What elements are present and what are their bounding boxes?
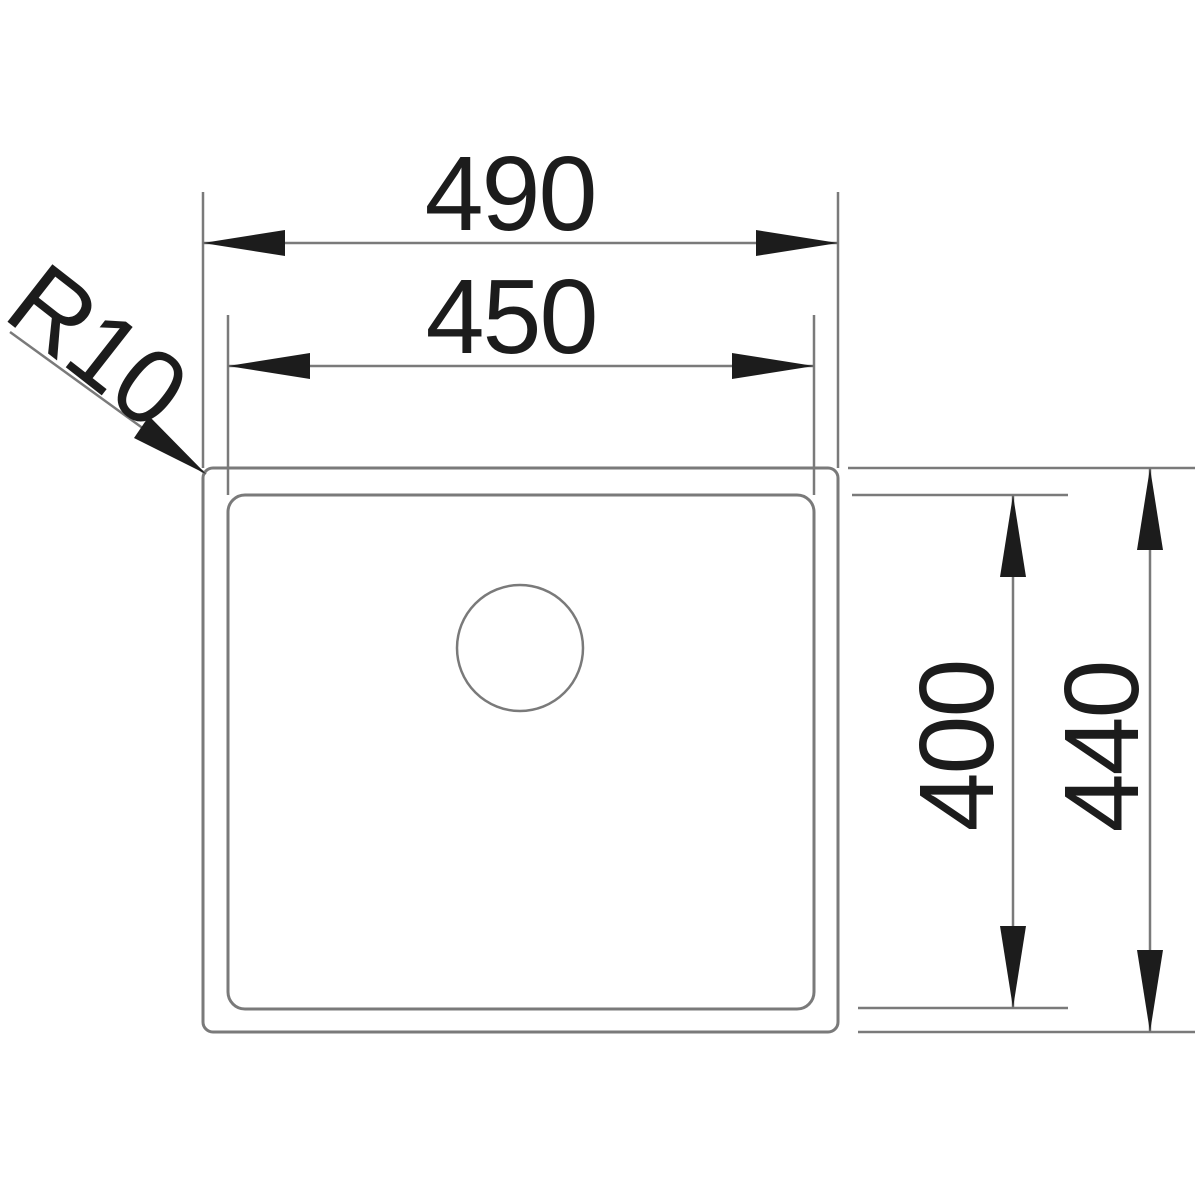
- dimension-drawing-canvas: 490 450 400 440 R10: [0, 0, 1200, 1200]
- radius-callout: R10: [0, 241, 208, 474]
- dim-outer-width: 490: [203, 135, 838, 256]
- arrow-up-icon: [1000, 495, 1026, 577]
- dim-label-inner-width: 450: [426, 258, 597, 376]
- arrow-down-icon: [1137, 950, 1163, 1032]
- extension-lines: [203, 192, 1195, 1032]
- sink-dimension-drawing: 490 450 400 440 R10: [0, 0, 1200, 1200]
- dim-label-outer-width: 490: [425, 135, 596, 253]
- arrow-right-icon: [732, 353, 814, 379]
- dim-outer-height: 440: [1043, 468, 1163, 1032]
- radius-label: R10: [0, 241, 208, 450]
- dim-inner-height: 400: [898, 495, 1026, 1008]
- sink-outer-outline: [203, 468, 838, 1032]
- dim-inner-width: 450: [228, 258, 814, 379]
- dim-label-outer-height: 440: [1043, 662, 1161, 833]
- arrow-right-icon: [756, 230, 838, 256]
- arrow-left-icon: [203, 230, 285, 256]
- drain-hole: [457, 585, 583, 711]
- arrow-up-icon: [1137, 468, 1163, 550]
- arrow-down-icon: [1000, 926, 1026, 1008]
- arrow-left-icon: [228, 353, 310, 379]
- sink-body: [203, 468, 838, 1032]
- sink-bowl-outline: [228, 495, 814, 1009]
- dim-label-inner-height: 400: [898, 661, 1016, 832]
